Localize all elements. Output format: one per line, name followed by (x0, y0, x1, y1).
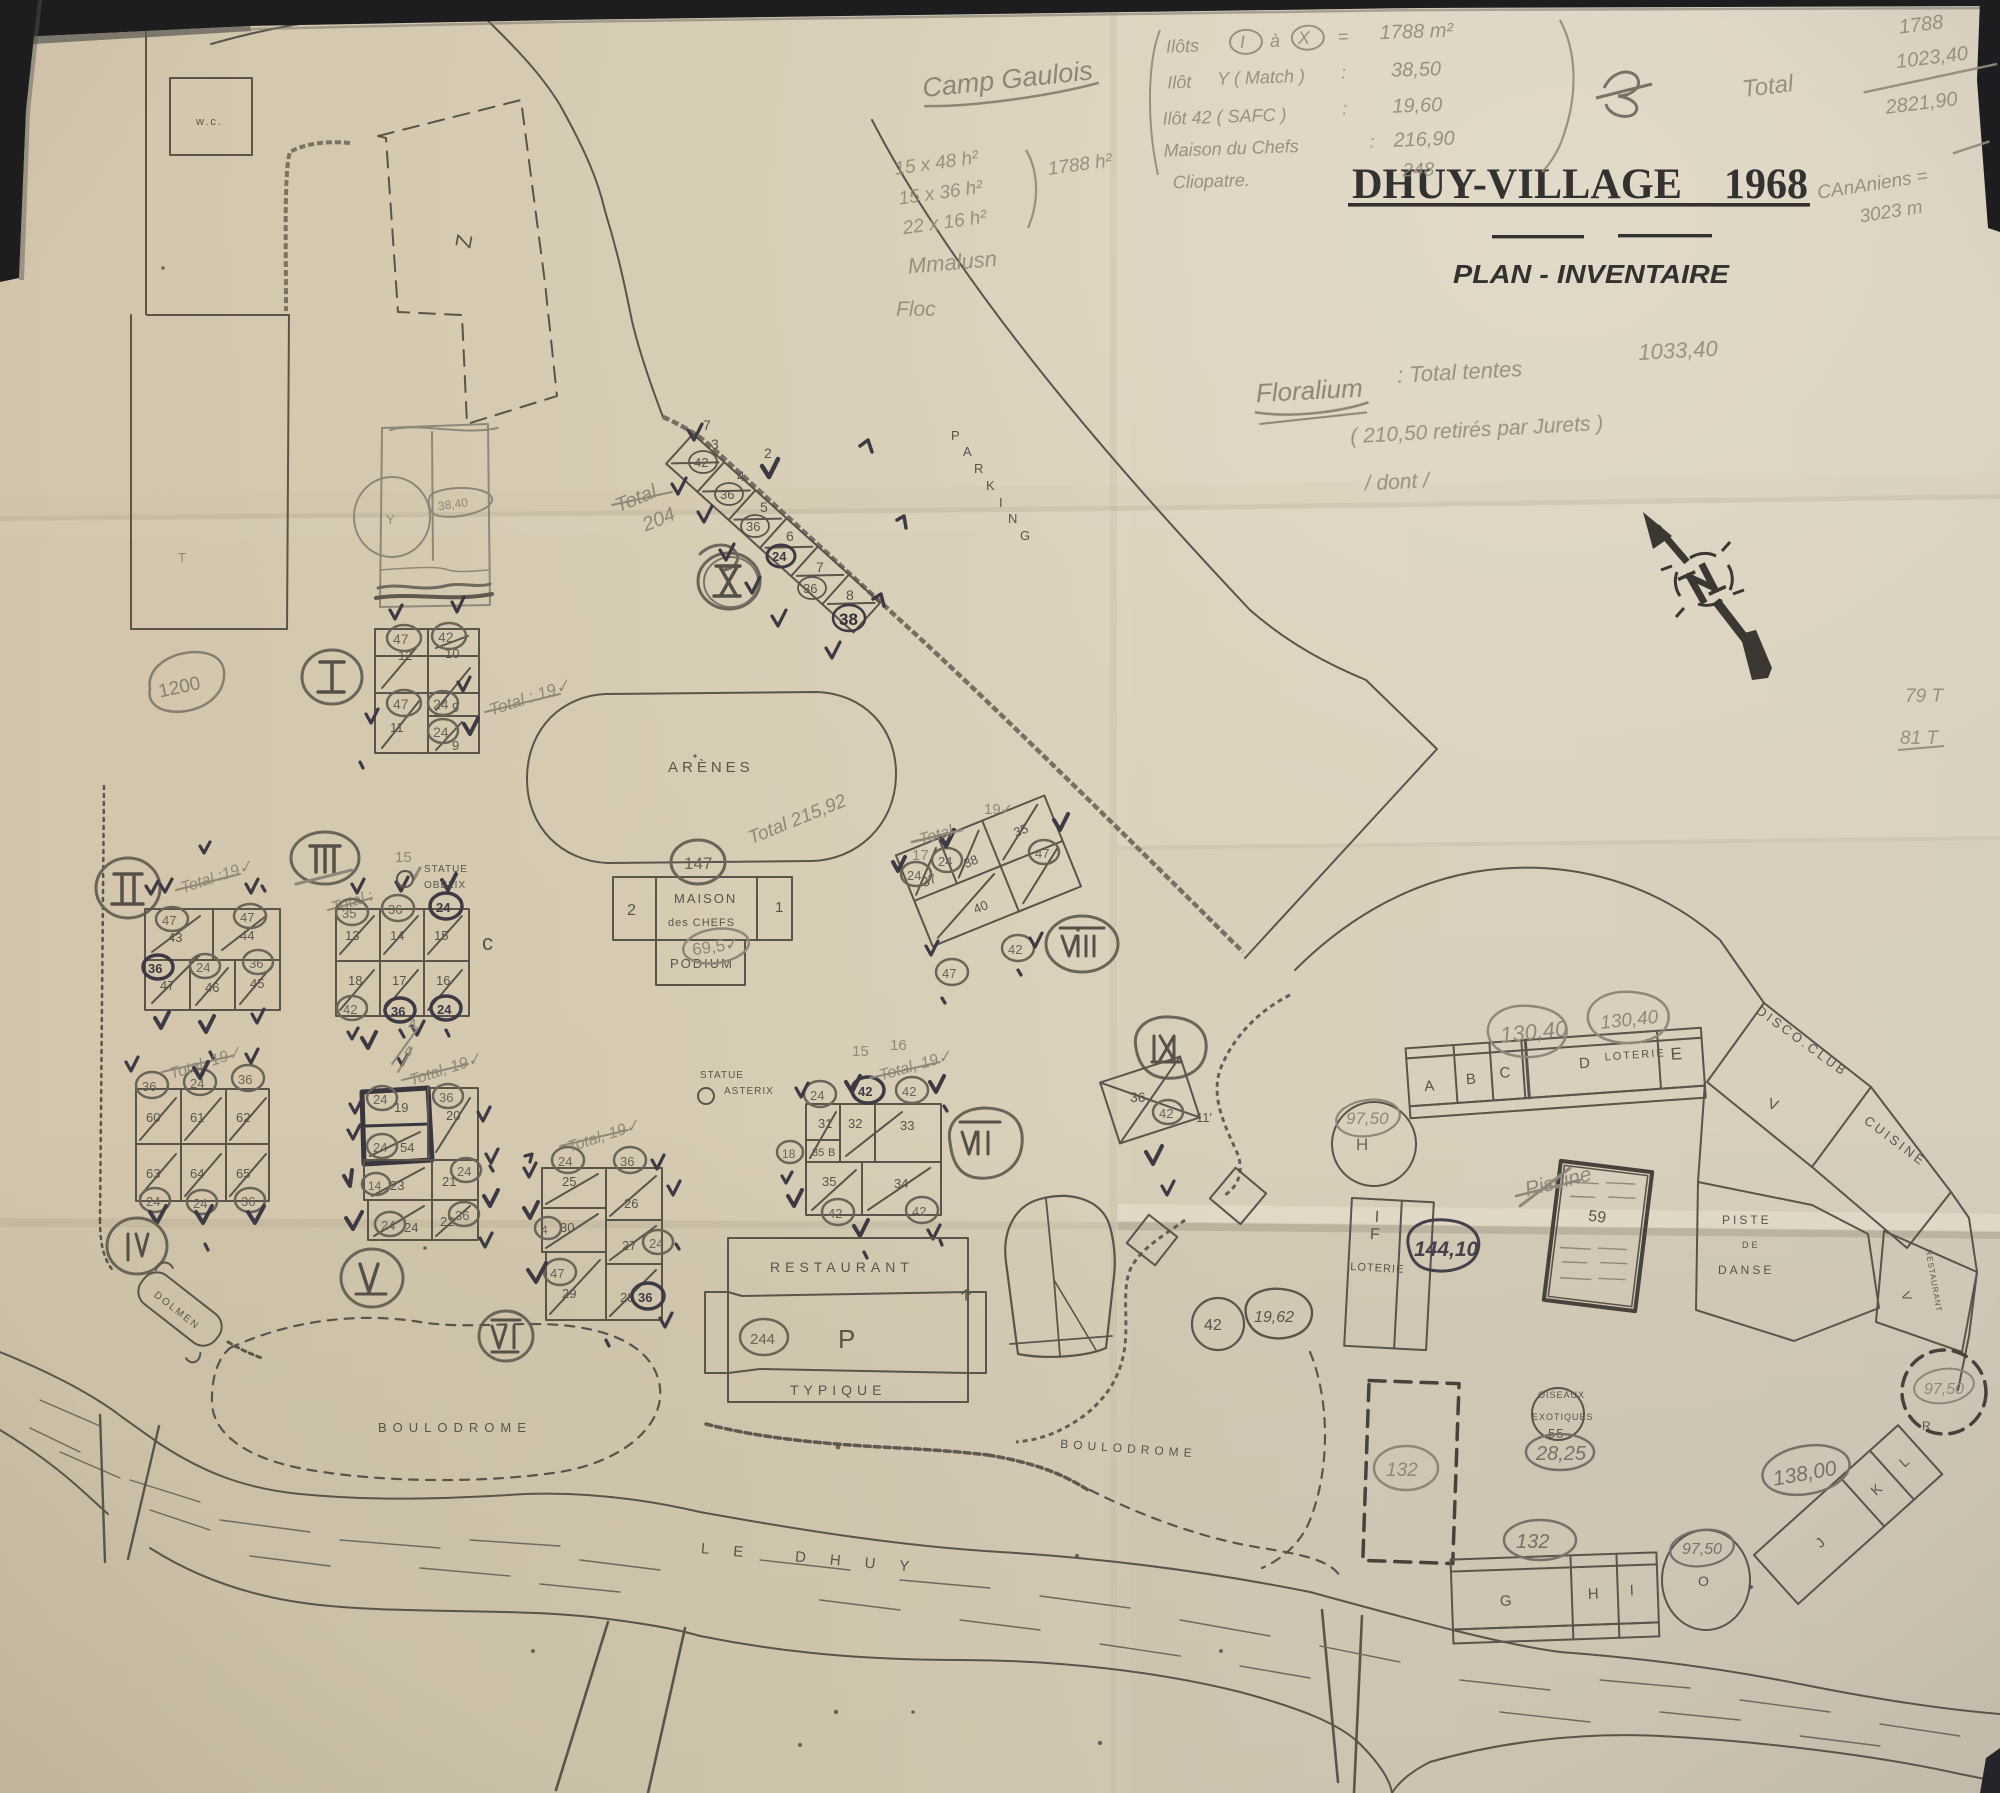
svg-text:/ dont /: / dont / (1362, 469, 1431, 496)
svg-text:14: 14 (368, 1179, 382, 1193)
svg-text:42: 42 (1159, 1106, 1173, 1121)
svg-text:47: 47 (942, 966, 956, 981)
svg-text:des CHEFS: des CHEFS (668, 917, 735, 929)
svg-text:45: 45 (250, 976, 264, 991)
svg-text:24: 24 (381, 1218, 395, 1233)
svg-text:79 T: 79 T (1905, 686, 1944, 707)
svg-text:F: F (1370, 1226, 1381, 1244)
svg-text:16: 16 (436, 973, 450, 988)
svg-text:24: 24 (558, 1154, 572, 1169)
svg-text:24: 24 (373, 1140, 387, 1155)
svg-text:36: 36 (241, 1194, 255, 1209)
svg-text:2: 2 (764, 445, 772, 461)
svg-text:42: 42 (438, 629, 454, 645)
svg-text:K: K (986, 478, 995, 493)
svg-text:A: A (963, 444, 972, 459)
svg-text:19✓: 19✓ (984, 801, 1013, 818)
svg-text:27: 27 (622, 1238, 636, 1253)
svg-text:B: B (828, 1147, 835, 1159)
svg-text:97,50: 97,50 (1682, 1541, 1722, 1558)
svg-text:36: 36 (388, 902, 402, 917)
svg-text:42: 42 (1204, 1317, 1222, 1334)
svg-text:32: 32 (848, 1116, 862, 1131)
svg-text:17: 17 (912, 847, 929, 864)
svg-text:42: 42 (828, 1206, 842, 1221)
svg-text:35: 35 (812, 1147, 824, 1159)
svg-text:47: 47 (393, 631, 409, 647)
svg-text:13: 13 (345, 928, 359, 943)
svg-text:38: 38 (839, 610, 858, 629)
svg-text:24: 24 (457, 1164, 471, 1179)
svg-text:MAISON: MAISON (674, 891, 737, 906)
svg-text:36: 36 (720, 487, 734, 502)
svg-text:31: 31 (818, 1116, 832, 1131)
svg-text:w.c.: w.c. (195, 116, 223, 128)
svg-text:59: 59 (1587, 1208, 1607, 1227)
svg-text:P: P (838, 1324, 855, 1354)
svg-text:36: 36 (638, 1290, 652, 1305)
svg-text:24: 24 (433, 724, 449, 740)
svg-text:STATUE: STATUE (424, 864, 468, 875)
svg-text:65: 65 (236, 1166, 250, 1181)
svg-text:N: N (1008, 511, 1017, 526)
svg-text:PLAN - INVENTAIRE: PLAN - INVENTAIRE (1453, 259, 1730, 289)
svg-text:24: 24 (373, 1092, 387, 1107)
svg-text:15: 15 (852, 1043, 869, 1060)
svg-text:28,25: 28,25 (1535, 1443, 1587, 1465)
svg-text:36: 36 (455, 1208, 469, 1223)
svg-text:147: 147 (684, 854, 712, 873)
svg-text:24: 24 (772, 549, 787, 564)
svg-text:C: C (1499, 1064, 1511, 1082)
svg-text:47: 47 (240, 910, 254, 925)
svg-text:38,50: 38,50 (1391, 58, 1442, 82)
svg-text:23: 23 (390, 1178, 404, 1193)
svg-text:216,90: 216,90 (1392, 128, 1455, 152)
svg-text:14: 14 (390, 928, 404, 943)
svg-text:42: 42 (912, 1204, 926, 1219)
svg-text:ARÈNES: ARÈNES (668, 759, 754, 776)
svg-text:B: B (1465, 1071, 1476, 1089)
svg-text::: : (1369, 131, 1375, 151)
svg-text:4: 4 (541, 1223, 548, 1237)
svg-text:24: 24 (907, 868, 921, 883)
svg-text:24: 24 (404, 1220, 418, 1235)
svg-text::: : (1342, 98, 1348, 118)
svg-text:42: 42 (858, 1084, 872, 1099)
svg-text:144,10: 144,10 (1414, 1238, 1479, 1261)
svg-text:24: 24 (190, 1076, 204, 1091)
svg-text:42: 42 (902, 1084, 916, 1099)
svg-text:O: O (1698, 1573, 1709, 1589)
svg-text:3: 3 (711, 436, 719, 452)
svg-text:47: 47 (550, 1266, 564, 1281)
svg-text:EXOTIQUES: EXOTIQUES (1532, 1412, 1594, 1422)
svg-text:4: 4 (737, 468, 745, 484)
svg-text:19,62: 19,62 (1254, 1309, 1294, 1326)
svg-text:Ilôt: Ilôt (1167, 72, 1193, 93)
svg-text:15: 15 (395, 849, 412, 866)
svg-text:H: H (1588, 1585, 1599, 1602)
svg-text:63: 63 (146, 1166, 160, 1181)
svg-text:5: 5 (760, 499, 768, 515)
svg-text:46: 46 (205, 980, 219, 995)
svg-text:42: 42 (343, 1002, 357, 1017)
svg-text:132: 132 (1516, 1531, 1549, 1553)
svg-text:36: 36 (746, 519, 760, 534)
svg-text:29: 29 (562, 1286, 576, 1301)
svg-text:11: 11 (390, 720, 404, 735)
svg-text:RESTAURANT: RESTAURANT (770, 1259, 914, 1275)
svg-text:Floc: Floc (896, 298, 936, 321)
svg-text:TYPIQUE: TYPIQUE (790, 1382, 886, 1398)
svg-text:Floralium: Floralium (1255, 373, 1363, 409)
svg-text:1033,40: 1033,40 (1638, 336, 1719, 365)
svg-text:244: 244 (750, 1331, 775, 1348)
svg-text:8: 8 (846, 587, 854, 603)
svg-text:I: I (1629, 1582, 1634, 1599)
svg-text:Cliopatre.: Cliopatre. (1172, 170, 1250, 193)
svg-text:G: G (1500, 1592, 1512, 1609)
svg-text:24: 24 (146, 1194, 160, 1209)
svg-text:33: 33 (900, 1118, 914, 1133)
svg-text:D: D (1578, 1055, 1590, 1073)
svg-text:47: 47 (162, 913, 176, 928)
svg-text:248: 248 (1401, 159, 1435, 181)
svg-text:R: R (974, 461, 983, 476)
svg-text:24: 24 (649, 1236, 663, 1251)
svg-text:6: 6 (786, 528, 794, 544)
svg-text:OISEAUX: OISEAUX (1538, 1390, 1585, 1400)
svg-text:54: 54 (400, 1140, 414, 1155)
svg-text:E: E (1670, 1044, 1683, 1064)
svg-text:11′: 11′ (1196, 1110, 1212, 1125)
svg-text:à: à (1270, 31, 1281, 51)
svg-text:DANSE: DANSE (1718, 1263, 1774, 1277)
svg-text:R: R (1922, 1419, 1931, 1433)
svg-text:61: 61 (190, 1110, 204, 1125)
svg-text:36: 36 (391, 1004, 405, 1019)
svg-text:64: 64 (190, 1166, 204, 1181)
svg-text:PISTE: PISTE (1722, 1213, 1772, 1227)
svg-text:60: 60 (146, 1110, 160, 1125)
svg-text:81 T: 81 T (1900, 728, 1939, 749)
svg-text:1: 1 (775, 899, 783, 916)
svg-text:47: 47 (393, 696, 409, 712)
svg-text:I: I (999, 495, 1003, 510)
svg-text:18: 18 (782, 1147, 796, 1161)
svg-text:35: 35 (342, 906, 356, 921)
svg-text:42: 42 (694, 455, 708, 470)
svg-text:42: 42 (1008, 942, 1022, 957)
svg-text:7: 7 (816, 559, 824, 575)
svg-text:25: 25 (562, 1174, 576, 1189)
svg-text:ASTERIX: ASTERIX (724, 1086, 774, 1097)
svg-text:36: 36 (1130, 1089, 1146, 1105)
svg-text:P: P (951, 428, 960, 443)
svg-text:36: 36 (620, 1154, 634, 1169)
svg-text:18: 18 (348, 973, 362, 988)
svg-text:OBELIX: OBELIX (424, 880, 466, 891)
svg-text:T: T (178, 550, 186, 565)
svg-text:62: 62 (236, 1110, 250, 1125)
svg-text:DE: DE (1742, 1240, 1761, 1250)
svg-text:43: 43 (168, 930, 182, 945)
svg-text:1968: 1968 (1724, 161, 1808, 208)
svg-text:36: 36 (238, 1072, 252, 1087)
svg-text:Ilôts: Ilôts (1166, 35, 1200, 56)
svg-text:24: 24 (810, 1088, 824, 1103)
svg-text:24: 24 (193, 1196, 207, 1211)
svg-text:15: 15 (434, 928, 448, 943)
svg-text:36: 36 (142, 1079, 156, 1094)
svg-text:A: A (1424, 1078, 1435, 1096)
svg-text:2: 2 (627, 902, 636, 919)
svg-text:24: 24 (436, 900, 451, 915)
svg-text:BOULODROME: BOULODROME (378, 1420, 532, 1435)
svg-text:I: I (1240, 32, 1246, 52)
svg-text:Y ( Match ): Y ( Match ) (1217, 66, 1305, 89)
svg-text:36: 36 (249, 956, 263, 971)
svg-text:24: 24 (196, 960, 210, 975)
svg-text:X: X (1296, 28, 1311, 48)
svg-text:36: 36 (148, 961, 162, 976)
svg-text:97,50: 97,50 (1924, 1381, 1964, 1398)
svg-text:97,50: 97,50 (1346, 1109, 1389, 1128)
svg-text::: : (1341, 62, 1347, 82)
svg-text:36: 36 (439, 1090, 453, 1105)
svg-text:1788 m²: 1788 m² (1379, 20, 1454, 45)
svg-text:24: 24 (433, 696, 449, 712)
svg-text:44: 44 (240, 928, 254, 943)
svg-text:G: G (1020, 528, 1030, 543)
svg-text:24: 24 (437, 1002, 452, 1017)
svg-text:17: 17 (392, 973, 406, 988)
svg-text:36: 36 (803, 581, 817, 596)
svg-text:H: H (1356, 1135, 1368, 1154)
svg-text:47: 47 (1035, 846, 1049, 861)
svg-text:26: 26 (624, 1196, 638, 1211)
svg-text:132: 132 (1386, 1460, 1418, 1481)
svg-text:7: 7 (703, 417, 711, 433)
svg-text:4: 4 (408, 1017, 417, 1034)
svg-text:20: 20 (446, 1108, 460, 1123)
svg-text:STATUE: STATUE (700, 1070, 744, 1081)
svg-text:34: 34 (894, 1176, 908, 1191)
svg-text:24: 24 (938, 854, 952, 869)
svg-text:19,60: 19,60 (1392, 94, 1443, 118)
svg-text:16: 16 (890, 1037, 907, 1054)
svg-text:35: 35 (822, 1174, 836, 1189)
svg-text:Y: Y (386, 512, 395, 527)
svg-text:c: c (482, 930, 493, 955)
svg-text:=: = (1337, 26, 1348, 46)
